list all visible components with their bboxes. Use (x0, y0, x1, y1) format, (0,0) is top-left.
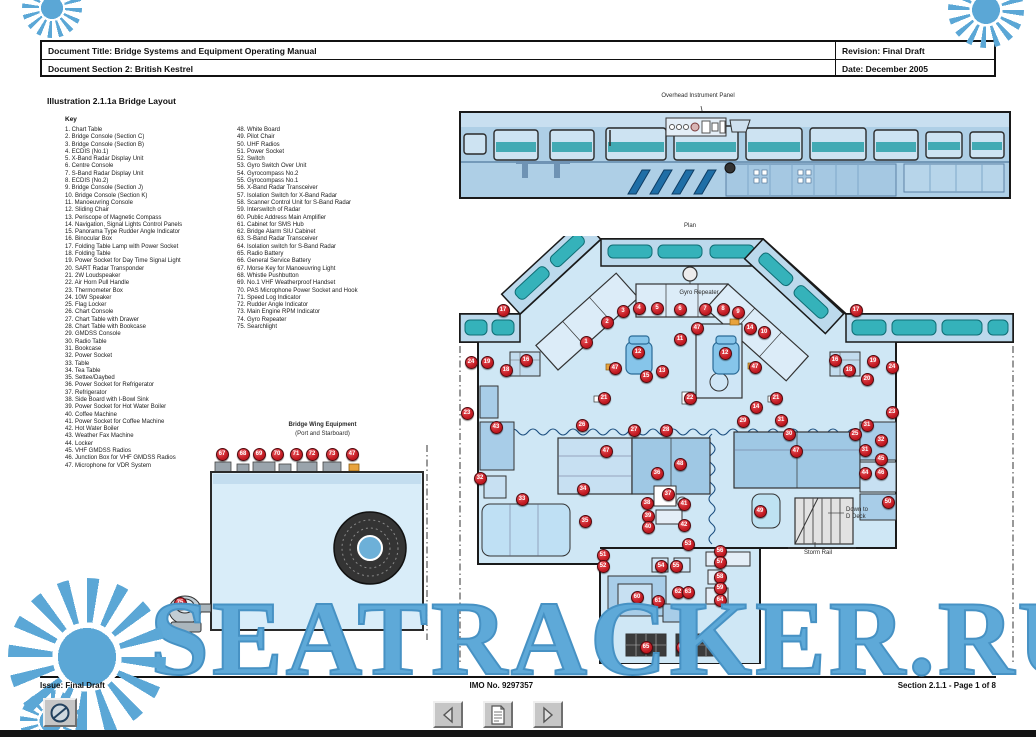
item-marker-33: 33 (516, 493, 529, 506)
key-item: 66. General Service Battery (237, 258, 407, 265)
key-item: 6. Centre Console (65, 163, 235, 170)
item-marker-14: 14 (750, 401, 763, 414)
key-item: 8. ECDIS (No.2) (65, 178, 235, 185)
key-item: 67. Morse Key for Manoeuvring Light (237, 266, 407, 273)
key-item: 27. Chart Table with Drawer (65, 317, 235, 324)
key-item: 42. Hot Water Boiler (65, 426, 235, 433)
key-item: 19. Power Socket for Day Time Signal Lig… (65, 258, 235, 265)
bottom-bar (0, 730, 1036, 737)
key-item: 56. X-Band Radar Transceiver (237, 185, 407, 192)
key-heading: Key (65, 116, 77, 123)
item-marker-47: 47 (346, 448, 359, 461)
key-item: 38. Side Board with I-Bowl Sink (65, 397, 235, 404)
item-marker-5: 5 (651, 302, 664, 315)
wing-equipment-sublabel: (Port and Starboard) (240, 431, 405, 437)
item-marker-44: 44 (859, 467, 872, 480)
key-item: 41. Power Socket for Coffee Machine (65, 419, 235, 426)
item-marker-18: 18 (500, 364, 513, 377)
item-marker-27: 27 (628, 424, 641, 437)
key-item: 63. S-Band Radar Transceiver (237, 236, 407, 243)
item-marker-47: 47 (790, 445, 803, 458)
key-item: 4. ECDIS (No.1) (65, 149, 235, 156)
key-item: 25. Flag Locker (65, 302, 235, 309)
key-item: 23. Thermometer Box (65, 288, 235, 295)
item-marker-17: 17 (497, 304, 510, 317)
item-marker-24: 24 (886, 361, 899, 374)
key-list-column-2: 48. White Board49. Pilot Chair50. UHF Ra… (237, 127, 407, 331)
item-marker-20: 20 (861, 373, 874, 386)
item-marker-41: 41 (678, 498, 691, 511)
item-marker-14: 14 (744, 322, 757, 335)
item-marker-31: 31 (775, 414, 788, 427)
key-item: 32. Power Socket (65, 353, 235, 360)
key-item: 72. Rudder Angle Indicator (237, 302, 407, 309)
circle-logo-icon (49, 702, 71, 724)
sun-icon (22, 0, 82, 38)
item-marker-49: 49 (754, 505, 767, 518)
item-marker-10: 10 (758, 326, 771, 339)
item-marker-19: 19 (481, 356, 494, 369)
key-item: 15. Panorama Type Rudder Angle Indicator (65, 229, 235, 236)
item-marker-8: 8 (717, 303, 730, 316)
item-marker-1: 1 (580, 336, 593, 349)
item-marker-72: 72 (306, 448, 319, 461)
item-marker-7: 7 (699, 303, 712, 316)
item-marker-57: 57 (714, 556, 727, 569)
key-item: 64. Isolation switch for S-Band Radar (237, 244, 407, 251)
document-section: Document Section 2: British Kestrel (48, 64, 193, 74)
key-item: 70. PAS Microphone Power Socket and Hook (237, 288, 407, 295)
item-marker-2: 2 (601, 316, 614, 329)
key-item: 34. Tea Table (65, 368, 235, 375)
key-item: 16. Binocular Box (65, 236, 235, 243)
key-item: 75. Searchlight (237, 324, 407, 331)
key-item: 31. Bookcase (65, 346, 235, 353)
item-marker-43: 43 (490, 421, 503, 434)
footer-issue: Issue: Final Draft (40, 681, 105, 690)
item-marker-69: 69 (253, 448, 266, 461)
key-list-column-1: 1. Chart Table2. Bridge Console (Section… (65, 127, 235, 470)
item-marker-23: 23 (886, 406, 899, 419)
key-item: 12. Sliding Chair (65, 207, 235, 214)
item-marker-22: 22 (684, 392, 697, 405)
right-arrow-icon (539, 706, 557, 724)
key-item: 20. SART Radar Transponder (65, 266, 235, 273)
item-marker-70: 70 (271, 448, 284, 461)
key-item: 48. White Board (237, 127, 407, 134)
key-item: 18. Folding Table (65, 251, 235, 258)
key-item: 35. Settee/Daybed (65, 375, 235, 382)
item-marker-16: 16 (829, 354, 842, 367)
item-marker-48: 48 (674, 458, 687, 471)
down-to-d-deck-label: Down to D Deck (846, 507, 896, 521)
key-item: 29. GMDSS Console (65, 331, 235, 338)
item-marker-54: 54 (655, 560, 668, 573)
key-item: 69. No.1 VHF Weatherproof Handset (237, 280, 407, 287)
key-item: 14. Navigation, Signal Lights Control Pa… (65, 222, 235, 229)
item-marker-55: 55 (670, 560, 683, 573)
key-item: 1. Chart Table (65, 127, 235, 134)
next-page-button[interactable] (533, 701, 563, 728)
key-item: 59. Interswitch of Radar (237, 207, 407, 214)
document-title: Document Title: Bridge Systems and Equip… (48, 46, 317, 56)
key-item: 61. Cabinet for SMS Hub (237, 222, 407, 229)
item-marker-28: 28 (660, 424, 673, 437)
plan-label: Plan (640, 223, 740, 229)
item-marker-34: 34 (577, 483, 590, 496)
item-marker-53: 53 (682, 538, 695, 551)
key-item: 65. Radio Battery (237, 251, 407, 258)
item-marker-32: 32 (474, 472, 487, 485)
item-marker-47: 47 (609, 362, 622, 375)
item-marker-47: 47 (691, 322, 704, 335)
key-item: 21. 2W Loudspeaker (65, 273, 235, 280)
key-item: 39. Power Socket for Hot Water Boiler (65, 404, 235, 411)
item-marker-11: 11 (674, 333, 687, 346)
item-marker-30: 30 (783, 428, 796, 441)
key-item: 33. Table (65, 361, 235, 368)
item-marker-68: 68 (237, 448, 250, 461)
key-item: 68. Whistle Pushbutton (237, 273, 407, 280)
key-item: 17. Folding Table Lamp with Power Socket (65, 244, 235, 251)
key-item: 74. Gyro Repeater (237, 317, 407, 324)
key-item: 57. Isolation Switch for X-Band Radar (237, 193, 407, 200)
page-menu-button[interactable] (483, 701, 513, 728)
item-marker-50: 50 (882, 496, 895, 509)
item-marker-12: 12 (719, 347, 732, 360)
key-item: 54. Gyrocompass No.2 (237, 171, 407, 178)
item-marker-73: 73 (326, 448, 339, 461)
bridge-elevation-drawing (458, 106, 1012, 202)
item-marker-21: 21 (598, 392, 611, 405)
item-marker-21: 21 (770, 392, 783, 405)
key-item: 22. Air Horn Pull Handle (65, 280, 235, 287)
item-marker-4: 4 (633, 302, 646, 315)
item-marker-40: 40 (642, 521, 655, 534)
item-marker-18: 18 (843, 364, 856, 377)
item-marker-24: 24 (465, 356, 478, 369)
key-item: 71. Speed Log Indicator (237, 295, 407, 302)
wing-equipment-label: Bridge Wing Equipment (240, 422, 405, 428)
item-marker-13: 13 (656, 365, 669, 378)
header-table: Document Title: Bridge Systems and Equip… (40, 40, 996, 77)
bridge-elevation-diagram (458, 106, 1012, 202)
key-item: 30. Radio Table (65, 339, 235, 346)
revision-label: Revision: Final Draft (842, 46, 925, 56)
date-label: Date: December 2005 (842, 64, 928, 74)
key-item: 37. Refrigerator (65, 390, 235, 397)
footer-imo: IMO No. 9297357 (470, 681, 534, 690)
key-item: 24. 10W Speaker (65, 295, 235, 302)
key-item: 28. Chart Table with Bookcase (65, 324, 235, 331)
item-marker-29: 29 (737, 415, 750, 428)
item-marker-15: 15 (640, 370, 653, 383)
storm-rail-label: Storm Rail (788, 550, 848, 556)
item-marker-36: 36 (651, 467, 664, 480)
gyro-repeater-label: Gyro Repeater (656, 290, 742, 296)
item-marker-6: 6 (674, 303, 687, 316)
item-marker-31: 31 (861, 419, 874, 432)
illustration-title: Illustration 2.1.1a Bridge Layout (47, 96, 176, 106)
key-item: 11. Manoeuvring Console (65, 200, 235, 207)
footer: Issue: Final Draft IMO No. 9297357 Secti… (40, 681, 996, 690)
key-item: 50. UHF Radios (237, 142, 407, 149)
item-marker-17: 17 (850, 304, 863, 317)
item-marker-35: 35 (579, 515, 592, 528)
item-marker-45: 45 (875, 453, 888, 466)
key-item: 53. Gyro Switch Over Unit (237, 163, 407, 170)
overhead-panel-label: Overhead Instrument Panel (608, 93, 788, 99)
item-marker-71: 71 (290, 448, 303, 461)
item-marker-32: 32 (875, 434, 888, 447)
item-marker-46: 46 (875, 467, 888, 480)
item-marker-19: 19 (867, 355, 880, 368)
key-item: 52. Switch (237, 156, 407, 163)
item-marker-47: 47 (600, 445, 613, 458)
header-divider (42, 59, 994, 60)
watermark-text: SEATRACKER.RU (150, 586, 1036, 692)
corner-logo-button[interactable] (43, 698, 77, 727)
key-item: 49. Pilot Chair (237, 134, 407, 141)
item-marker-23: 23 (461, 407, 474, 420)
key-item: 2. Bridge Console (Section C) (65, 134, 235, 141)
item-marker-31: 31 (859, 444, 872, 457)
item-marker-52: 52 (597, 560, 610, 573)
footer-section-page: Section 2.1.1 - Page 1 of 8 (898, 681, 996, 690)
key-item: 60. Public Address Main Amplifier (237, 215, 407, 222)
item-marker-47: 47 (749, 361, 762, 374)
item-marker-25: 25 (849, 428, 862, 441)
key-item: 40. Coffee Machine (65, 412, 235, 419)
item-marker-26: 26 (576, 419, 589, 432)
key-item: 51. Power Socket (237, 149, 407, 156)
document-page: Document Title: Bridge Systems and Equip… (0, 0, 1036, 737)
key-item: 3. Bridge Console (Section B) (65, 142, 235, 149)
item-marker-67: 67 (216, 448, 229, 461)
key-item: 36. Power Socket for Refrigerator (65, 382, 235, 389)
key-item: 55. Gyrocompass No.1 (237, 178, 407, 185)
left-arrow-icon (439, 706, 457, 724)
document-icon (489, 705, 507, 725)
key-item: 58. Scanner Control Unit for S-Band Rada… (237, 200, 407, 207)
key-item: 73. Main Engine RPM Indicator (237, 309, 407, 316)
key-item: 9. Bridge Console (Section J) (65, 185, 235, 192)
item-marker-42: 42 (678, 519, 691, 532)
key-item: 26. Chart Console (65, 309, 235, 316)
header-divider (835, 42, 836, 75)
prev-page-button[interactable] (433, 701, 463, 728)
item-marker-16: 16 (520, 354, 533, 367)
key-item: 10. Bridge Console (Section K) (65, 193, 235, 200)
key-item: 5. X-Band Radar Display Unit (65, 156, 235, 163)
key-item: 62. Bridge Alarm SIU Cabinet (237, 229, 407, 236)
item-marker-37: 37 (662, 488, 675, 501)
item-marker-38: 38 (641, 497, 654, 510)
d-deck-label: D Deck (846, 514, 896, 521)
item-marker-9: 9 (732, 306, 745, 319)
key-item: 13. Periscope of Magnetic Compass (65, 215, 235, 222)
item-marker-3: 3 (617, 305, 630, 318)
item-marker-12: 12 (632, 346, 645, 359)
key-item: 7. S-Band Radar Display Unit (65, 171, 235, 178)
